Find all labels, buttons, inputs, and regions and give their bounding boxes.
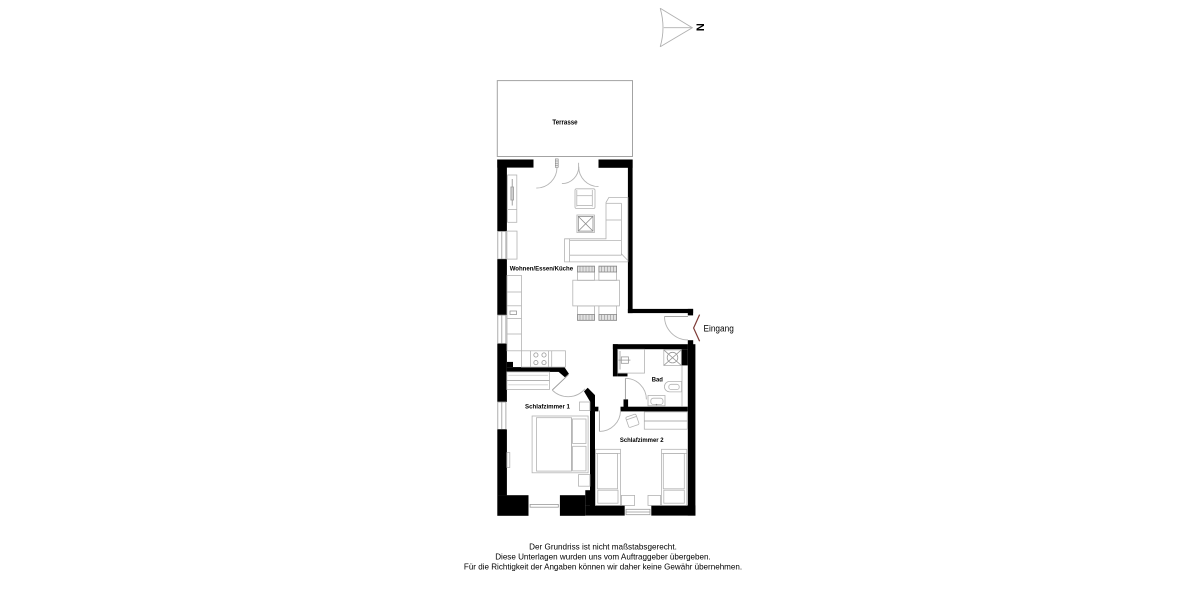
- svg-text:Für die Richtigkeit der Angabe: Für die Richtigkeit der Angaben können w…: [464, 561, 742, 571]
- svg-text:Terrasse: Terrasse: [552, 119, 577, 126]
- svg-text:Schlafzimmer 2: Schlafzimmer 2: [620, 437, 664, 444]
- svg-text:Schlafzimmer 1: Schlafzimmer 1: [525, 404, 570, 411]
- svg-text:Bad: Bad: [652, 376, 663, 383]
- svg-text:N: N: [694, 23, 706, 31]
- svg-text:Eingang: Eingang: [704, 323, 734, 333]
- svg-text:Der Grundriss ist nicht maßsta: Der Grundriss ist nicht maßstabsgerecht.: [529, 542, 677, 552]
- svg-text:Diese Unterlagen wurden uns vo: Diese Unterlagen wurden uns vom Auftragg…: [495, 552, 711, 562]
- svg-text:Wohnen/Essen/Küche: Wohnen/Essen/Küche: [510, 266, 574, 273]
